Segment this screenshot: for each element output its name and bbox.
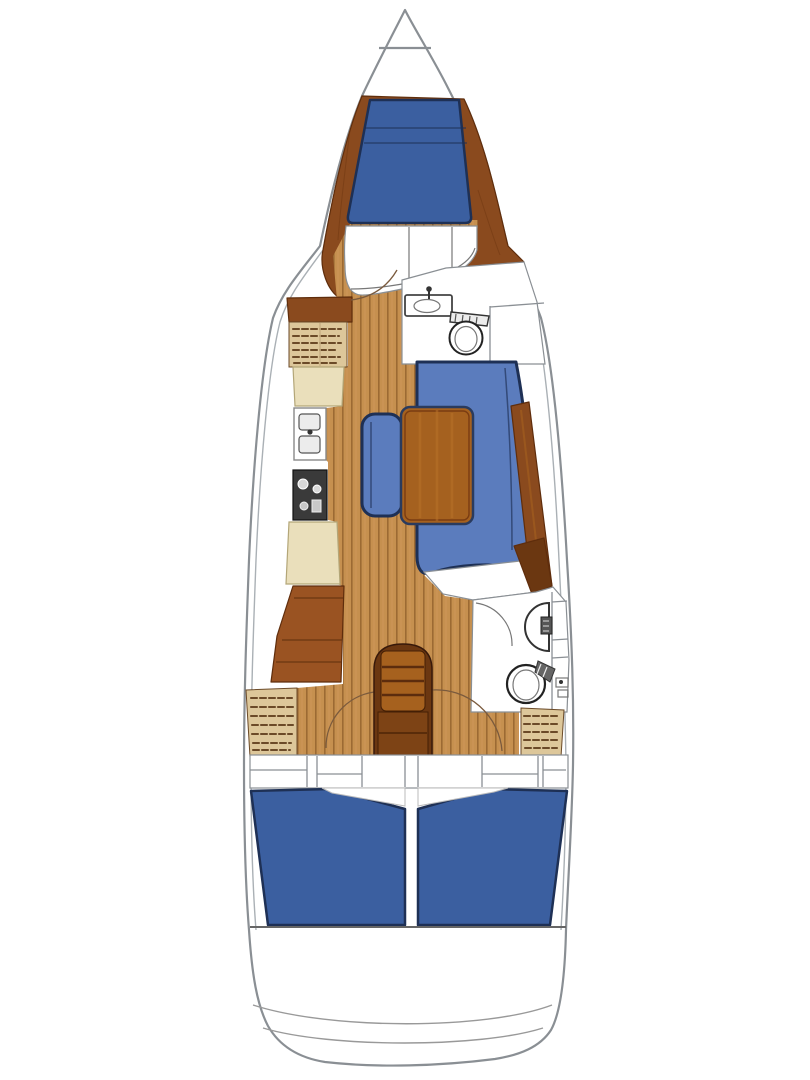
headboard-shelf-band — [250, 755, 568, 788]
aft-head-shelf-knob — [559, 680, 563, 684]
v-berth-mattress — [348, 100, 471, 223]
stove-oven — [312, 500, 321, 512]
galley-stove — [293, 470, 327, 520]
galley-counter-aft — [286, 522, 340, 584]
galley-sink-basin-2 — [299, 436, 320, 453]
forward-head-faucet-knob — [426, 286, 432, 292]
stove-burner-2 — [313, 485, 321, 493]
stove-burner-3 — [300, 502, 308, 510]
port-wood-cabinet — [287, 297, 352, 322]
forward-head — [402, 262, 545, 364]
galley-faucet — [307, 429, 312, 434]
starboard-aft-berth — [418, 789, 567, 925]
salon-bench — [362, 414, 402, 516]
starboard-aft-locker — [521, 708, 564, 757]
galley-sink-basin-1 — [299, 414, 320, 430]
aft-head — [471, 587, 569, 712]
floor-plan-canvas — [0, 0, 810, 1080]
boat-floor-plan — [0, 0, 810, 1080]
v-berth — [345, 100, 477, 295]
stove-burner-1 — [298, 479, 308, 489]
galley-counter-forward — [293, 367, 344, 406]
port-aft-berth — [251, 789, 405, 925]
